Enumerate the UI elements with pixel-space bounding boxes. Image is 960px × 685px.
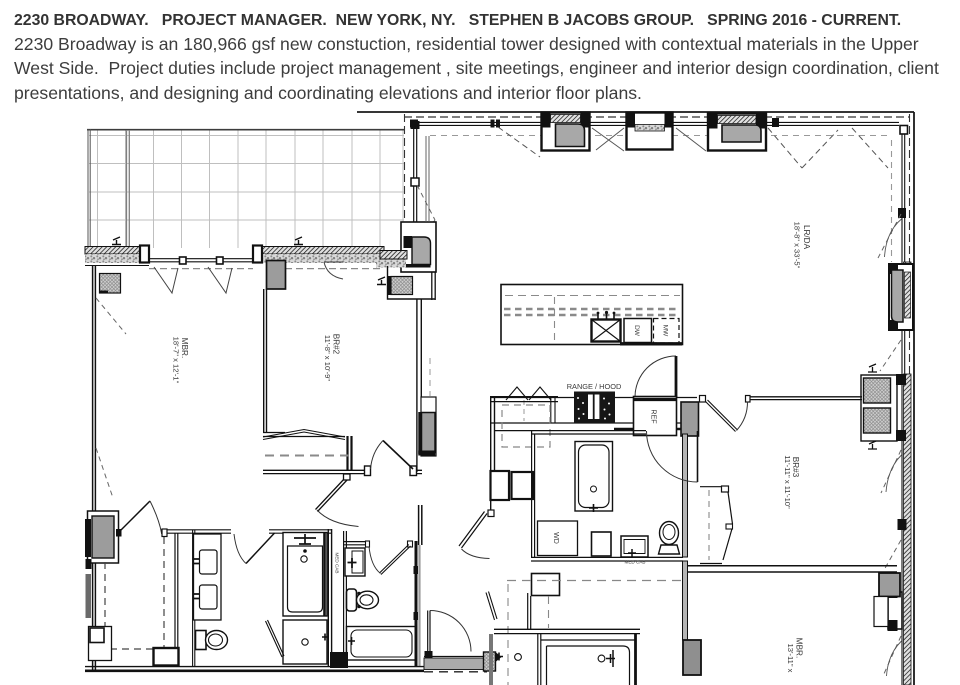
svg-text:18'-8" x 33'-5": 18'-8" x 33'-5": [793, 222, 802, 269]
svg-text:REF: REF: [650, 409, 659, 424]
svg-text:WD: WD: [552, 532, 559, 544]
svg-text:13'-11" x: 13'-11" x: [786, 644, 795, 673]
svg-text:RANGE / HOOD: RANGE / HOOD: [567, 382, 622, 391]
svg-text:MED CAB: MED CAB: [625, 560, 646, 565]
svg-text:DW: DW: [633, 325, 640, 337]
svg-text:MW: MW: [662, 325, 669, 337]
svg-text:LR/DA: LR/DA: [802, 225, 811, 250]
svg-text:MED CAB: MED CAB: [335, 553, 340, 574]
svg-text:18'-7" x 12'-1": 18'-7" x 12'-1": [172, 337, 181, 384]
svg-text:11'-8" x 10'-9": 11'-8" x 10'-9": [323, 335, 332, 381]
svg-text:11'-11" x 11'-10": 11'-11" x 11'-10": [783, 455, 792, 509]
